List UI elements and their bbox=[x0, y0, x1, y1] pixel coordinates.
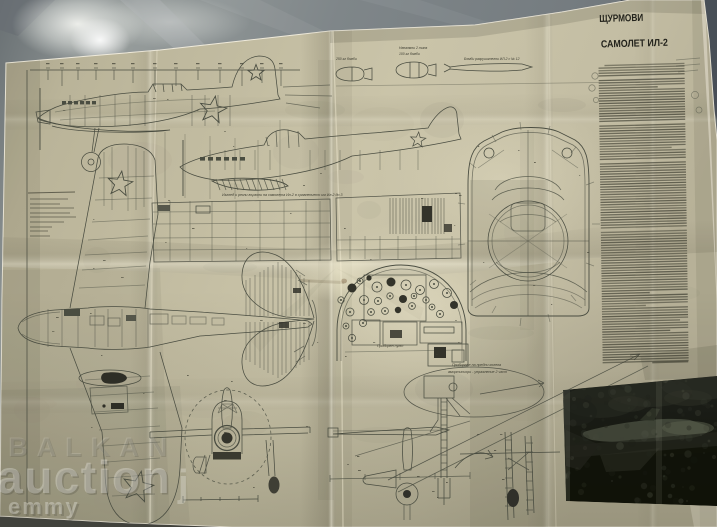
svg-text:emmy: emmy bbox=[8, 494, 80, 519]
svg-text:ЩУРМОВИ: ЩУРМОВИ bbox=[599, 13, 643, 25]
svg-text:Прибиране на предни колела: Прибиране на предни колела bbox=[452, 363, 501, 367]
svg-text:амортисьори - упражнение 2 час: амортисьори - упражнение 2 част bbox=[448, 370, 507, 374]
svg-text:САМОЛЕТ ИЛ-2: САМОЛЕТ ИЛ-2 bbox=[601, 38, 669, 51]
svg-text:Напалмни 2 типа: Напалмни 2 типа bbox=[399, 46, 427, 50]
svg-text:100 кг бомби: 100 кг бомби bbox=[399, 52, 420, 56]
svg-text:Изглед и резни вързоли на само: Изглед и резни вързоли на самолета Ил-2 … bbox=[222, 193, 343, 197]
svg-text:Бомби разрушителни ИЛ-2 с № 12: Бомби разрушителни ИЛ-2 с № 12 bbox=[464, 57, 520, 61]
svg-text:j: j bbox=[177, 463, 189, 505]
svg-text:250 кг бомби: 250 кг бомби bbox=[335, 57, 357, 61]
svg-text:Приборен пулт: Приборен пулт bbox=[377, 344, 403, 348]
